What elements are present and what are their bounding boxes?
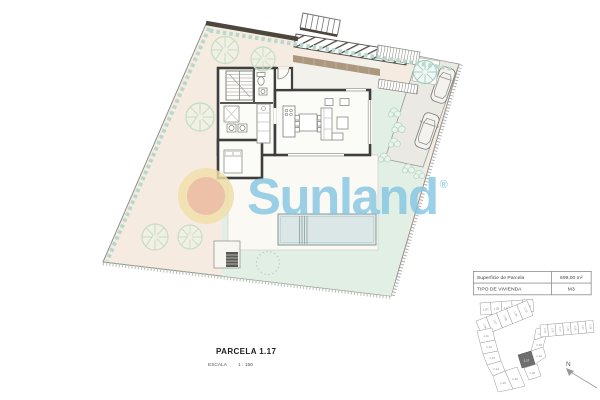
row-label: TIPO DE VIVIENDA (473, 283, 551, 295)
highlighted-lot-label: 1.17 (524, 359, 530, 363)
neighbor-stairs (300, 13, 340, 36)
lot-label: 1.12 (486, 345, 492, 349)
lot-label: 1.25 (566, 326, 569, 332)
parcel-info-table: Superficie de Parcela 699,00 m² TIPO DE … (473, 271, 592, 295)
lot-label: 1.26 (573, 325, 576, 331)
north-arrow: N (566, 361, 597, 388)
shelf-unit (340, 99, 349, 106)
parcel-title: PARCELA 1.17 (216, 347, 276, 356)
minimap-left-fan: 1.11 1.12 1.13 1.14 1.15 1.16 1.18 1.19 … (477, 326, 548, 392)
scale-row: ESCALA 1 : 150 (208, 363, 253, 368)
lot-label: 1.02 (493, 306, 500, 310)
pool (278, 214, 376, 245)
scale-value: 1 : 150 (238, 363, 253, 368)
lot-label: 1.01 (483, 307, 490, 311)
table-row: TIPO DE VIVIENDA M3 (473, 283, 591, 295)
lot-label: 1.24 (558, 327, 561, 333)
lot-label: 1.14 (493, 367, 499, 371)
dining-table (295, 114, 322, 132)
drawing-page: 1.01 1.02 1.03 1.04 1.05 1.06 1.07 1.08 … (0, 0, 600, 400)
minimap-right-strip: 1.22 1.23 1.24 1.25 1.26 1.27 1.28 (540, 320, 594, 337)
coffee-table (337, 117, 348, 129)
garden-steps (214, 241, 240, 268)
lot-label: 1.20 (536, 343, 542, 347)
north-arrowhead (566, 368, 574, 376)
lot-label: 1.19 (536, 354, 542, 358)
north-label: N (566, 361, 571, 368)
floor-plan-drawing: 1.01 1.02 1.03 1.04 1.05 1.06 1.07 1.08 … (0, 0, 600, 400)
row-label: Superficie de Parcela (473, 271, 551, 283)
lot-label: 1.13 (489, 356, 495, 360)
lot-label: 1.11 (483, 334, 489, 338)
lot-label: 1.18 (529, 371, 535, 375)
tv-unit (325, 99, 333, 106)
row-value: M3 (551, 283, 591, 295)
bed (224, 150, 242, 173)
shower (224, 106, 239, 122)
scale-label: ESCALA (208, 363, 227, 368)
lot-label: 1.28 (588, 324, 591, 330)
kitchen-island (283, 106, 295, 137)
lot-label: 1.27 (581, 325, 584, 331)
lot-label: 1.15 (500, 381, 506, 385)
site-location-minimap: 1.01 1.02 1.03 1.04 1.05 1.06 1.07 1.08 … (476, 299, 594, 392)
table-row: Superficie de Parcela 699,00 m² (473, 271, 591, 283)
stairs (226, 71, 253, 100)
lot-label: 1.22 (543, 328, 546, 334)
row-value: 699,00 m² (551, 271, 591, 283)
lot-label: 1.16 (512, 377, 518, 381)
lot-label: 1.23 (551, 327, 554, 333)
